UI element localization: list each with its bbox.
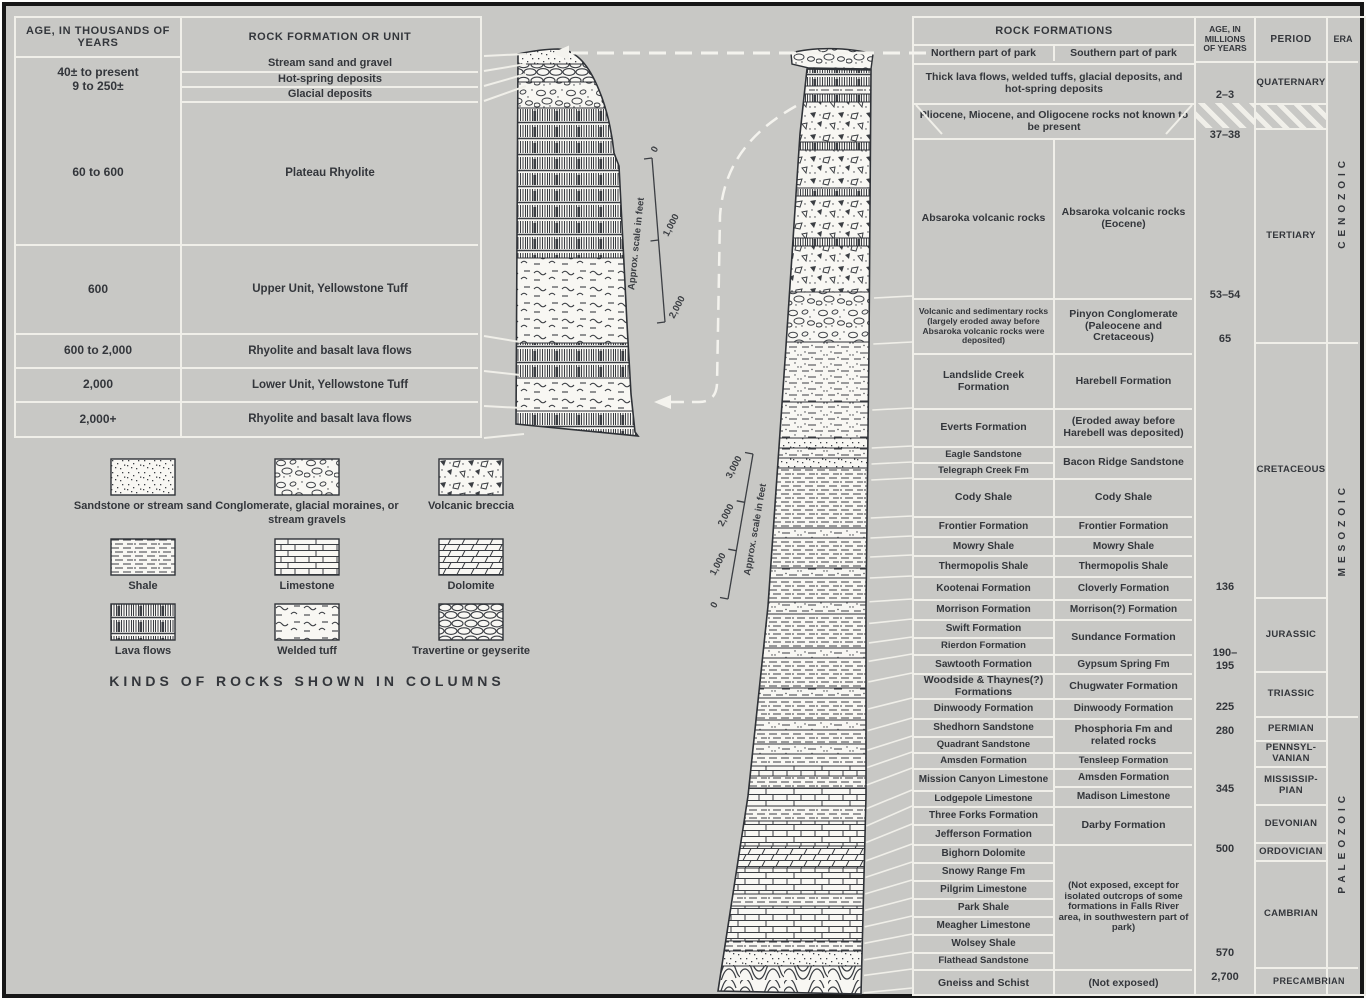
age-value: 280 <box>1196 725 1254 738</box>
formation-cell-south: Tensleep Formation <box>1055 752 1192 768</box>
age-column: AGE, IN MILLIONS OF YEARS 2–337–3853–546… <box>1194 18 1254 994</box>
precambrian-label: PRECAMBRIAN <box>1256 969 1362 992</box>
south-formations: Absaroka volcanic rocks (Eocene)Pinyon C… <box>1053 140 1192 996</box>
legend-label: Dolomite <box>447 580 494 594</box>
formation-cell-north: Eagle Sandstone <box>914 446 1053 462</box>
period-cell: TERTIARY <box>1256 128 1326 342</box>
left-rock-cell: Stream sand and gravel <box>182 56 478 71</box>
period-gap-hatch <box>1256 103 1326 128</box>
period-cell: JURASSIC <box>1256 597 1326 671</box>
period-header: PERIOD <box>1256 18 1326 61</box>
formation-cell-north: Mowry Shale <box>914 536 1053 555</box>
formation-cell-south: Gypsum Spring Fm <box>1055 654 1192 673</box>
formation-cell-south: (Eroded away before Harebell was deposit… <box>1055 408 1192 446</box>
age-header: AGE, IN MILLIONS OF YEARS <box>1196 18 1254 61</box>
left-rock-cell: Plateau Rhyolite <box>182 101 478 244</box>
formation-cell-south: Dinwoody Formation <box>1055 698 1192 718</box>
legend-item: Travertine or geyserite <box>389 603 553 659</box>
formation-cell-south: Frontier Formation <box>1055 516 1192 536</box>
legend-label: Shale <box>128 580 157 594</box>
left-rock-cell: Hot-spring deposits <box>182 71 478 86</box>
formation-cell-south: Morrison(?) Formation <box>1055 599 1192 619</box>
formation-cell-north: Snowy Range Fm <box>914 862 1053 880</box>
formation-cell-north: Mission Canyon Limestone <box>914 768 1053 790</box>
left-age-cell: 600 <box>16 244 180 333</box>
era-cells: CENOZOICMESOZOICPALEOZOIC <box>1328 61 1358 994</box>
legend-label: Volcanic breccia <box>428 500 514 514</box>
chart-frame: AGE, IN THOUSANDS OF YEARS 40± to presen… <box>2 2 1364 998</box>
legend-label: Welded tuff <box>277 645 337 659</box>
era-column: ERA CENOZOICMESOZOICPALEOZOIC <box>1326 18 1358 994</box>
formation-cell-north: Absaroka volcanic rocks <box>914 140 1053 298</box>
period-cell: CRETACEOUS <box>1256 342 1326 597</box>
age-gap-hatch <box>1196 103 1254 128</box>
period-cell: TRIASSIC <box>1256 671 1326 716</box>
full-strat-column <box>696 44 896 1000</box>
left-rock-column: ROCK FORMATION OR UNIT Stream sand and g… <box>180 18 478 436</box>
svg-text:2,000: 2,000 <box>667 294 688 320</box>
svg-text:1,000: 1,000 <box>661 212 682 238</box>
formation-cell-north: Lodgepole Limestone <box>914 790 1053 806</box>
rock-formations-table: ROCK FORMATIONS Northern part of park So… <box>912 16 1366 996</box>
age-span-line2: 9 to 250± <box>72 80 123 93</box>
era-label: CENOZOIC <box>1337 156 1348 249</box>
north-formations: Absaroka volcanic rocksVolcanic and sedi… <box>914 140 1053 996</box>
legend: Sandstone or stream sandConglomerate, gl… <box>61 458 553 689</box>
formation-cell-north: Everts Formation <box>914 408 1053 446</box>
formation-cell-north: Meagher Limestone <box>914 916 1053 934</box>
age-span-line1: 40± to present <box>57 66 138 79</box>
legend-item: Lava flows <box>61 603 225 659</box>
legend-label: Lava flows <box>115 645 171 659</box>
formation-cell-north: Thermopolis Shale <box>914 555 1053 576</box>
age-values: 2–337–3853–5465136190–195225280345500570… <box>1196 61 1254 994</box>
formation-cell-north: Three Forks Formation <box>914 806 1053 824</box>
age-value: 136 <box>1196 581 1254 594</box>
period-cell: QUATERNARY <box>1256 63 1326 103</box>
left-rock-cell: Rhyolite and basalt lava flows <box>182 333 478 367</box>
formation-cell-north: Landslide Creek Formation <box>914 353 1053 408</box>
formation-cell-south: Phosphoria Fm and related rocks <box>1055 718 1192 752</box>
formation-cell-south: Madison Limestone <box>1055 786 1192 806</box>
period-cell: CAMBRIAN <box>1256 860 1326 967</box>
rock-formations-header: ROCK FORMATIONS <box>914 18 1194 44</box>
left-age-cell: 600 to 2,000 <box>16 333 180 367</box>
formation-cell-south: Cloverly Formation <box>1055 576 1192 599</box>
legend-title: KINDS OF ROCKS SHOWN IN COLUMNS <box>61 673 553 689</box>
formation-cell-south: Pinyon Conglomerate (Paleocene and Creta… <box>1055 298 1192 353</box>
period-cells: QUATERNARYTERTIARYCRETACEOUSJURASSICTRIA… <box>1256 61 1326 994</box>
formation-cell-south: (Not exposed, except for isolated outcro… <box>1055 844 1192 969</box>
formation-cell-south: Chugwater Formation <box>1055 673 1192 698</box>
legend-item: Limestone <box>225 538 389 594</box>
south-part-header: Southern part of park <box>1053 46 1192 61</box>
formation-cell-north: Quadrant Sandstone <box>914 736 1053 752</box>
period-cell: DEVONIAN <box>1256 804 1326 842</box>
formation-cell-north: Morrison Formation <box>914 599 1053 619</box>
quaternary-units-table: AGE, IN THOUSANDS OF YEARS 40± to presen… <box>14 16 482 438</box>
age-value: 500 <box>1196 843 1254 856</box>
age-value: 2–3 <box>1196 89 1254 102</box>
legend-label: Sandstone or stream sand <box>74 500 212 514</box>
formation-cell-south: Mowry Shale <box>1055 536 1192 555</box>
formation-cell-south: Bacon Ridge Sandstone <box>1055 446 1192 478</box>
tertiary-gap-cell: Pliocene, Miocene, and Oligocene rocks n… <box>914 103 1194 138</box>
dolomite-pattern-swatch <box>438 538 504 576</box>
age-value: 190– <box>1196 647 1254 660</box>
age-value: 225 <box>1196 701 1254 714</box>
left-age-span-cell: 40± to present 9 to 250± <box>16 56 180 101</box>
era-cell: PALEOZOIC <box>1328 716 1358 967</box>
quaternary-strat-column <box>504 44 654 444</box>
formation-cell-north: Swift Formation <box>914 619 1053 637</box>
era-label: MESOZOIC <box>1337 483 1348 576</box>
formation-cell-north: Rierdon Formation <box>914 637 1053 654</box>
limestone-pattern-swatch <box>274 538 340 576</box>
age-value: 345 <box>1196 783 1254 796</box>
era-label: PALEOZOIC <box>1337 791 1348 894</box>
legend-label: Limestone <box>279 580 334 594</box>
tuff-pattern-swatch <box>274 603 340 641</box>
geologic-chart: AGE, IN THOUSANDS OF YEARS 40± to presen… <box>0 0 1366 1000</box>
age-value: 195 <box>1196 660 1254 673</box>
age-value: 53–54 <box>1196 289 1254 302</box>
age-value: 65 <box>1196 333 1254 346</box>
legend-item: Dolomite <box>389 538 553 594</box>
trav-pattern-swatch <box>438 603 504 641</box>
formation-cell-north: Park Shale <box>914 898 1053 916</box>
legend-label: Conglomerate, glacial moraines, or strea… <box>197 500 417 528</box>
formation-cell-north: Frontier Formation <box>914 516 1053 536</box>
shale-pattern-swatch <box>110 538 176 576</box>
left-age-cell: 2,000+ <box>16 401 180 436</box>
formation-cell-north: Flathead Sandstone <box>914 952 1053 969</box>
era-header: ERA <box>1328 18 1358 61</box>
formation-cell-north: Amsden Formation <box>914 752 1053 768</box>
formation-cell-south: Amsden Formation <box>1055 768 1192 786</box>
quaternary-span-cell: Thick lava flows, welded tuffs, glacial … <box>914 63 1194 103</box>
formation-cell-south: Cody Shale <box>1055 478 1192 516</box>
formation-cell-north: Gneiss and Schist <box>914 969 1053 996</box>
formation-cell-north: Cody Shale <box>914 478 1053 516</box>
formation-cell-south: (Not exposed) <box>1055 969 1192 996</box>
formation-cell-north: Dinwoody Formation <box>914 698 1053 718</box>
age-value: 37–38 <box>1196 129 1254 142</box>
formation-cell-north: Shedhorn Sandstone <box>914 718 1053 736</box>
formation-cell-south: Thermopolis Shale <box>1055 555 1192 576</box>
left-age-cell: 2,000 <box>16 367 180 401</box>
arrowhead-bottom <box>654 395 671 409</box>
north-part-header: Northern part of park <box>914 46 1053 61</box>
formation-cell-north: Pilgrim Limestone <box>914 880 1053 898</box>
left-age-column: AGE, IN THOUSANDS OF YEARS 40± to presen… <box>16 18 180 436</box>
formation-cell-north: Kootenai Formation <box>914 576 1053 599</box>
formation-cell-north: Volcanic and sedimentary rocks (largely … <box>914 298 1053 353</box>
left-rock-header: ROCK FORMATION OR UNIT <box>182 18 478 56</box>
formation-cell-north: Telegraph Creek Fm <box>914 462 1053 478</box>
age-value: 570 <box>1196 947 1254 960</box>
period-cell: ORDOVICIAN <box>1256 842 1326 860</box>
era-cell: CENOZOIC <box>1328 63 1358 342</box>
period-cell: PERMIAN <box>1256 716 1326 740</box>
period-cell: PENNSYL-VANIAN <box>1256 740 1326 766</box>
formation-cell-south: Darby Formation <box>1055 806 1192 844</box>
left-rock-cell: Rhyolite and basalt lava flows <box>182 401 478 436</box>
formation-cell-north: Wolsey Shale <box>914 934 1053 952</box>
left-age-cell: 60 to 600 <box>16 101 180 244</box>
era-cell: MESOZOIC <box>1328 342 1358 716</box>
left-rock-cell: Lower Unit, Yellowstone Tuff <box>182 367 478 401</box>
legend-item: Welded tuff <box>225 603 389 659</box>
period-cell: MISSISSIP-PIAN <box>1256 766 1326 804</box>
left-rock-cell: Glacial deposits <box>182 86 478 101</box>
age-value: 2,700 <box>1196 971 1254 984</box>
legend-item: Volcanic breccia <box>389 458 553 528</box>
sand-pattern-swatch <box>110 458 176 496</box>
formation-cell-north: Jefferson Formation <box>914 824 1053 844</box>
legend-item: Shale <box>61 538 225 594</box>
legend-item: Conglomerate, glacial moraines, or strea… <box>225 458 389 528</box>
left-rock-cell: Upper Unit, Yellowstone Tuff <box>182 244 478 333</box>
formation-cell-south: Harebell Formation <box>1055 353 1192 408</box>
congl-pattern-swatch <box>274 458 340 496</box>
period-column: PERIOD QUATERNARYTERTIARYCRETACEOUSJURAS… <box>1254 18 1326 994</box>
formations-columns: ROCK FORMATIONS Northern part of park So… <box>914 18 1194 994</box>
left-age-header: AGE, IN THOUSANDS OF YEARS <box>16 18 180 56</box>
lava-pattern-swatch <box>110 603 176 641</box>
breccia-pattern-swatch <box>438 458 504 496</box>
formation-cell-north: Sawtooth Formation <box>914 654 1053 673</box>
formation-cell-north: Bighorn Dolomite <box>914 844 1053 862</box>
formation-cell-north: Woodside & Thaynes(?) Formations <box>914 673 1053 698</box>
formation-cell-south: Absaroka volcanic rocks (Eocene) <box>1055 140 1192 298</box>
formation-cell-south: Sundance Formation <box>1055 619 1192 654</box>
legend-label: Travertine or geyserite <box>412 645 530 659</box>
